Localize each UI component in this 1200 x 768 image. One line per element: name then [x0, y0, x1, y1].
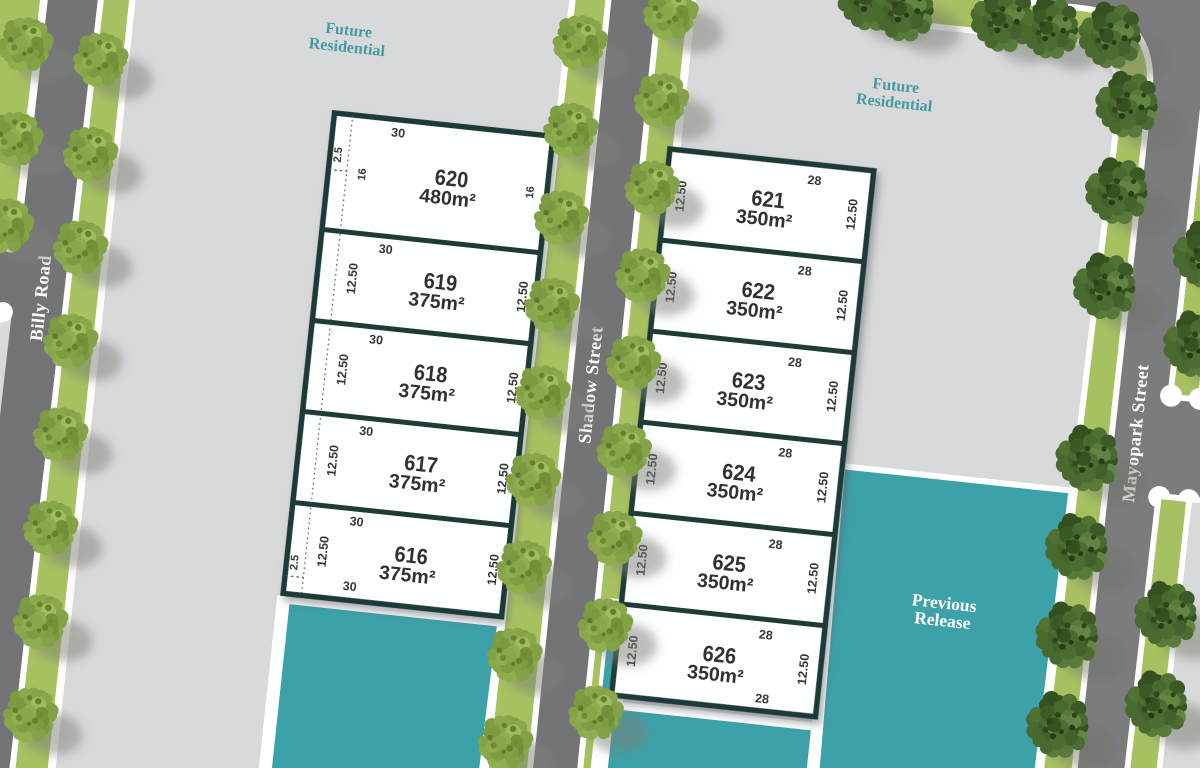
svg-text:30: 30 — [390, 125, 405, 140]
svg-text:PreviousRelease: PreviousRelease — [909, 589, 978, 633]
svg-text:2.5: 2.5 — [332, 147, 346, 163]
svg-text:28: 28 — [758, 627, 773, 642]
svg-text:30: 30 — [368, 332, 383, 347]
svg-text:30: 30 — [342, 579, 357, 594]
svg-text:28: 28 — [778, 445, 793, 460]
svg-text:28: 28 — [807, 173, 822, 188]
svg-text:28: 28 — [768, 537, 783, 552]
svg-text:28: 28 — [787, 355, 802, 370]
svg-text:28: 28 — [797, 263, 812, 278]
svg-text:30: 30 — [359, 424, 374, 439]
svg-text:2.5: 2.5 — [288, 554, 302, 570]
svg-text:28: 28 — [754, 691, 769, 706]
svg-text:16: 16 — [524, 186, 537, 199]
svg-text:30: 30 — [378, 242, 393, 257]
svg-text:30: 30 — [349, 514, 364, 529]
svg-text:16: 16 — [356, 168, 369, 181]
